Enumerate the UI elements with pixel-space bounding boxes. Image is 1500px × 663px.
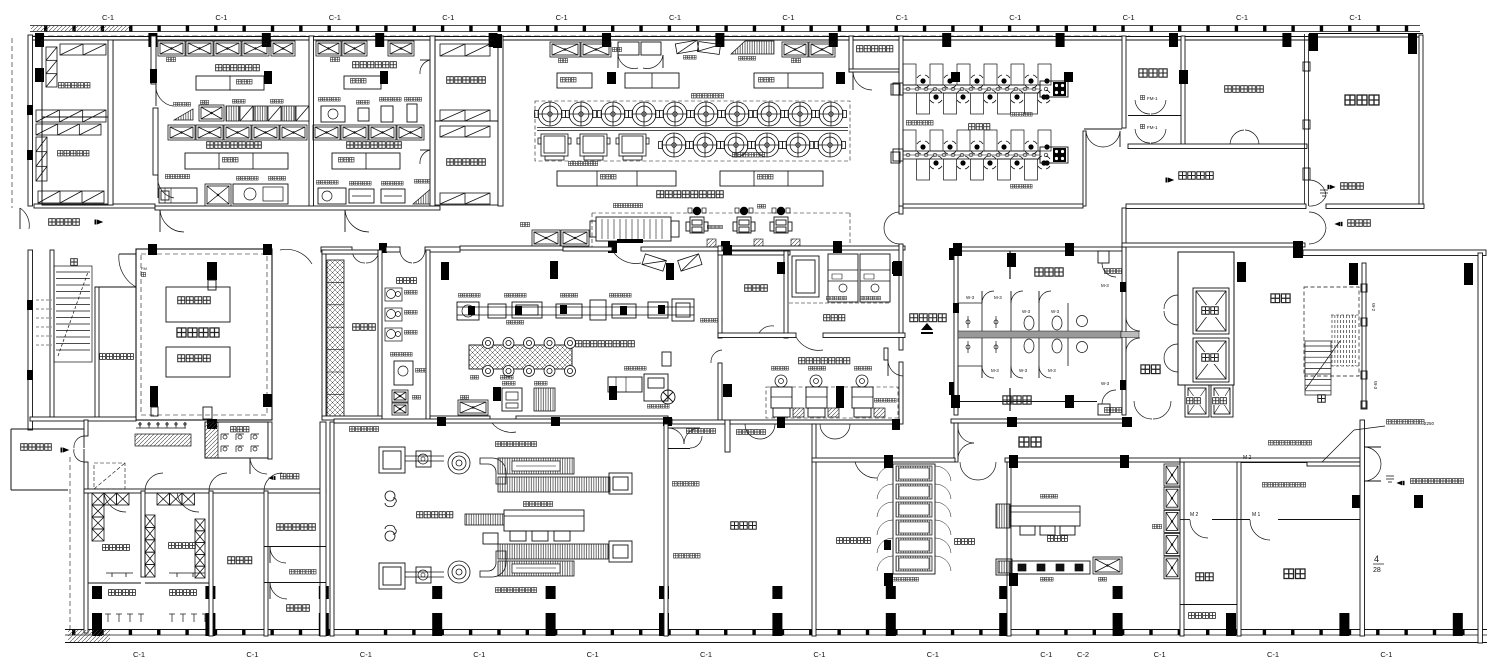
svg-text:C-1: C-1: [927, 650, 939, 659]
svg-text:FM-1: FM-1: [1147, 96, 1158, 101]
svg-text:C-1: C-1: [1040, 650, 1052, 659]
svg-text:C-1: C-1: [1267, 650, 1279, 659]
svg-text:C-1: C-1: [1009, 13, 1021, 22]
svg-text:C-1: C-1: [133, 650, 145, 659]
svg-text:C-1: C-1: [1154, 650, 1166, 659]
svg-text:C-1: C-1: [896, 13, 908, 22]
svg-text:4: 4: [1374, 554, 1379, 564]
svg-text:C-1: C-1: [102, 13, 114, 22]
svg-text:M-3: M-3: [1048, 368, 1056, 373]
svg-text:C-1: C-1: [215, 13, 227, 22]
svg-text:C-2: C-2: [1077, 650, 1089, 659]
svg-text:2250: 2250: [1424, 421, 1435, 426]
svg-text:M 1: M 1: [1252, 512, 1261, 518]
svg-text:W-3: W-3: [1051, 309, 1060, 314]
svg-text:C-1: C-1: [669, 13, 681, 22]
svg-text:C-1: C-1: [1123, 13, 1135, 22]
svg-text:C-1: C-1: [813, 650, 825, 659]
svg-text:M-3: M-3: [994, 295, 1002, 300]
svg-text:W-3: W-3: [1022, 309, 1031, 314]
svg-text:C-1: C-1: [1349, 13, 1361, 22]
svg-text:W-3: W-3: [1373, 381, 1378, 390]
svg-text:28: 28: [1373, 567, 1381, 574]
svg-text:C-1: C-1: [556, 13, 568, 22]
svg-text:W-3: W-3: [1101, 381, 1110, 386]
svg-text:C-1: C-1: [1380, 650, 1392, 659]
svg-text:C-1: C-1: [587, 650, 599, 659]
svg-text:C-1: C-1: [700, 650, 712, 659]
svg-text:C-1: C-1: [782, 13, 794, 22]
svg-text:M-3: M-3: [991, 368, 999, 373]
svg-text:FM: FM: [141, 266, 147, 271]
svg-text:M 2: M 2: [1243, 455, 1252, 461]
svg-text:C-1: C-1: [1236, 13, 1248, 22]
svg-text:C-1: C-1: [246, 650, 258, 659]
svg-text:W-3: W-3: [966, 295, 975, 300]
svg-text:W-2: W-2: [1371, 303, 1376, 312]
svg-text:FM-1: FM-1: [1147, 125, 1158, 130]
svg-text:M 2: M 2: [1190, 512, 1199, 518]
svg-text:C-1: C-1: [442, 13, 454, 22]
svg-text:C-1: C-1: [473, 650, 485, 659]
svg-text:W-3: W-3: [1019, 368, 1028, 373]
svg-text:C-1: C-1: [360, 650, 372, 659]
svg-text:C-1: C-1: [329, 13, 341, 22]
svg-text:M-3: M-3: [1101, 283, 1109, 288]
